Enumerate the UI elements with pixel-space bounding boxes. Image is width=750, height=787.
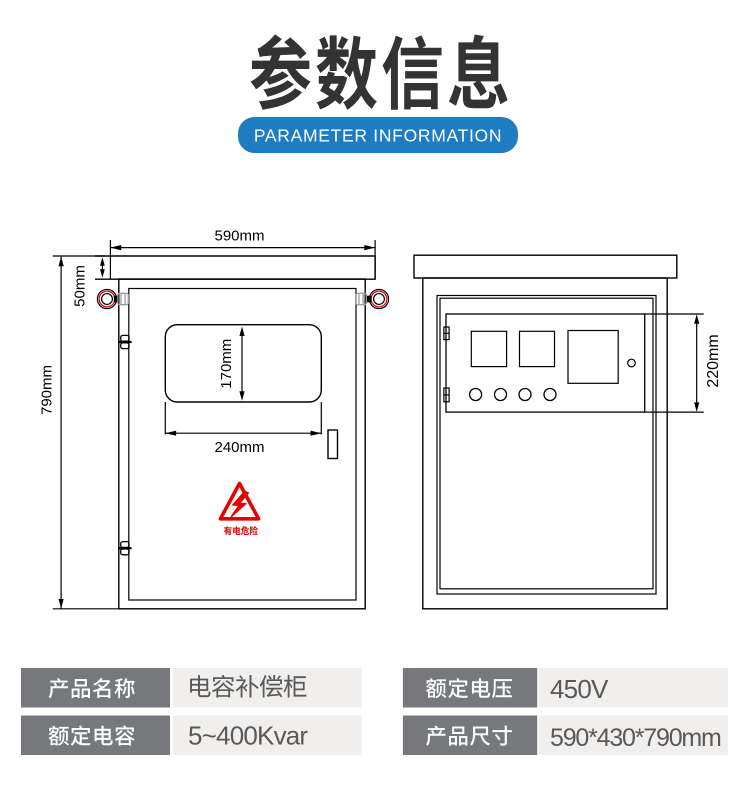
svg-text:220mm: 220mm [705,334,722,387]
svg-text:590*430*790mm: 590*430*790mm [550,724,721,752]
svg-text:450V: 450V [550,674,609,704]
svg-text:5~400Kvar: 5~400Kvar [188,721,308,751]
svg-text:590mm: 590mm [214,228,264,245]
svg-text:790mm: 790mm [39,365,56,415]
svg-text:240mm: 240mm [214,439,264,456]
svg-text:50mm: 50mm [72,265,89,307]
svg-text:170mm: 170mm [218,339,235,389]
svg-text:PARAMETER INFORMATION: PARAMETER INFORMATION [254,126,502,146]
